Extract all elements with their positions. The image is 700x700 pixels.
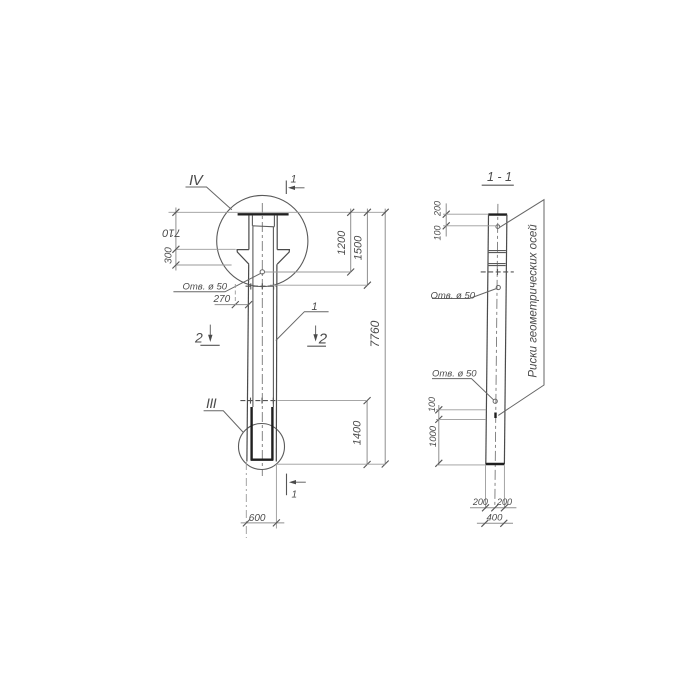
- svg-text:300: 300: [164, 247, 175, 264]
- svg-text:400: 400: [487, 512, 504, 523]
- svg-text:1: 1: [292, 490, 298, 501]
- svg-text:7760: 7760: [368, 320, 382, 347]
- svg-text:1: 1: [291, 174, 297, 186]
- svg-text:200: 200: [433, 201, 443, 217]
- svg-text:2: 2: [194, 330, 203, 346]
- svg-text:III: III: [206, 395, 217, 411]
- svg-text:270: 270: [213, 294, 231, 305]
- svg-text:Отв. ø 50: Отв. ø 50: [183, 281, 228, 292]
- svg-text:1000: 1000: [428, 425, 439, 447]
- svg-text:100: 100: [427, 397, 437, 412]
- svg-text:710: 710: [161, 227, 180, 239]
- svg-text:Отв. ø 50: Отв. ø 50: [431, 291, 476, 302]
- svg-text:Риски геометрических осей: Риски геометрических осей: [528, 224, 540, 378]
- svg-text:200: 200: [472, 497, 488, 507]
- svg-text:2: 2: [318, 331, 328, 348]
- svg-text:1200: 1200: [336, 230, 348, 255]
- svg-text:1400: 1400: [352, 420, 364, 445]
- svg-text:1 - 1: 1 - 1: [487, 170, 512, 184]
- svg-text:600: 600: [249, 513, 266, 524]
- svg-text:Отв. ø 50: Отв. ø 50: [432, 368, 477, 379]
- svg-text:100: 100: [433, 225, 443, 240]
- svg-text:1500: 1500: [353, 235, 365, 260]
- svg-text:200: 200: [496, 497, 512, 507]
